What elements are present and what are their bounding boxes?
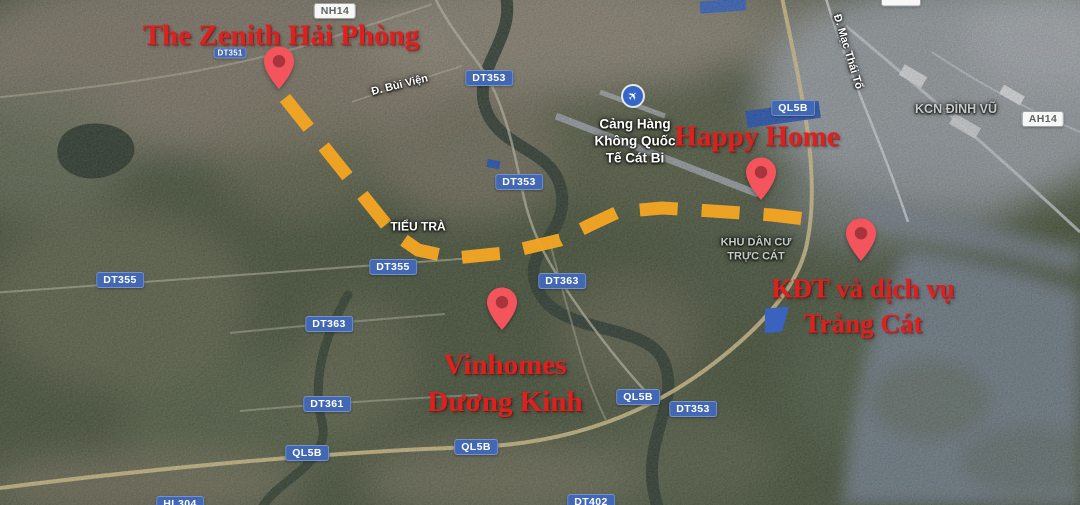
map-canvas[interactable]: DT351DT353DT353DT355DT355DT363DT363DT361… (0, 0, 1080, 505)
street-label-bui-vien: Đ. Bùi Viện (370, 72, 429, 99)
road-badge-ql5b: QL5B (616, 389, 660, 405)
road-badge-dt355: DT355 (369, 259, 417, 275)
road-badge-ql5b: QL5B (285, 445, 329, 461)
road-badge-dt353: DT353 (669, 401, 717, 417)
area-label-kcn-dinh-vu: KCN ĐÌNH VŨ (915, 102, 997, 118)
map-pin-happy-home[interactable] (744, 156, 778, 207)
road-badge-dt361: DT361 (303, 396, 351, 412)
road-badge-fragment (881, 0, 921, 7)
map-pin-vinhomes-duong-kinh[interactable] (485, 286, 519, 337)
road-badge-ql5b: QL5B (771, 100, 815, 116)
road-badge-ah14: AH14 (1022, 111, 1064, 127)
road-badge-hl304: HL304 (156, 496, 204, 505)
area-label-tieu-tra: TIỂU TRÀ (390, 220, 445, 235)
airport-label-cat-bi-airport: Cảng HàngKhông QuốcTế Cát Bi (595, 117, 676, 168)
road-badge-ql5b: QL5B (454, 439, 498, 455)
project-label-happy-home: Happy Home (674, 118, 839, 155)
project-label-vinhomes-duong-kinh: VinhomesDương Kinh (427, 347, 582, 421)
road-badge-dt363: DT363 (538, 273, 586, 289)
road-badge-dt363: DT363 (305, 316, 353, 332)
road-badge-dt353: DT353 (465, 70, 513, 86)
road-badge-dt355: DT355 (96, 272, 144, 288)
area-label-khu-dan-cu-truc-cat: KHU DÂN CƯTRỰC CÁT (721, 236, 792, 264)
map-overlay: DT351DT353DT353DT355DT355DT363DT363DT361… (0, 0, 1080, 505)
airplane-icon: ✈ (623, 86, 643, 106)
map-pin-kdt-va-dich-vu-trang-cat[interactable] (844, 217, 878, 268)
road-badge-dt353: DT353 (495, 174, 543, 190)
road-badge-dt402: DT402 (567, 494, 615, 505)
street-label-mac-thai-to: Đ. Mạc Thái Tổ (829, 13, 865, 91)
map-pin-the-zenith-hai-phong[interactable] (262, 45, 296, 96)
project-label-kdt-va-dich-vu-trang-cat: KĐT và dịch vụTràng Cát (771, 271, 954, 340)
